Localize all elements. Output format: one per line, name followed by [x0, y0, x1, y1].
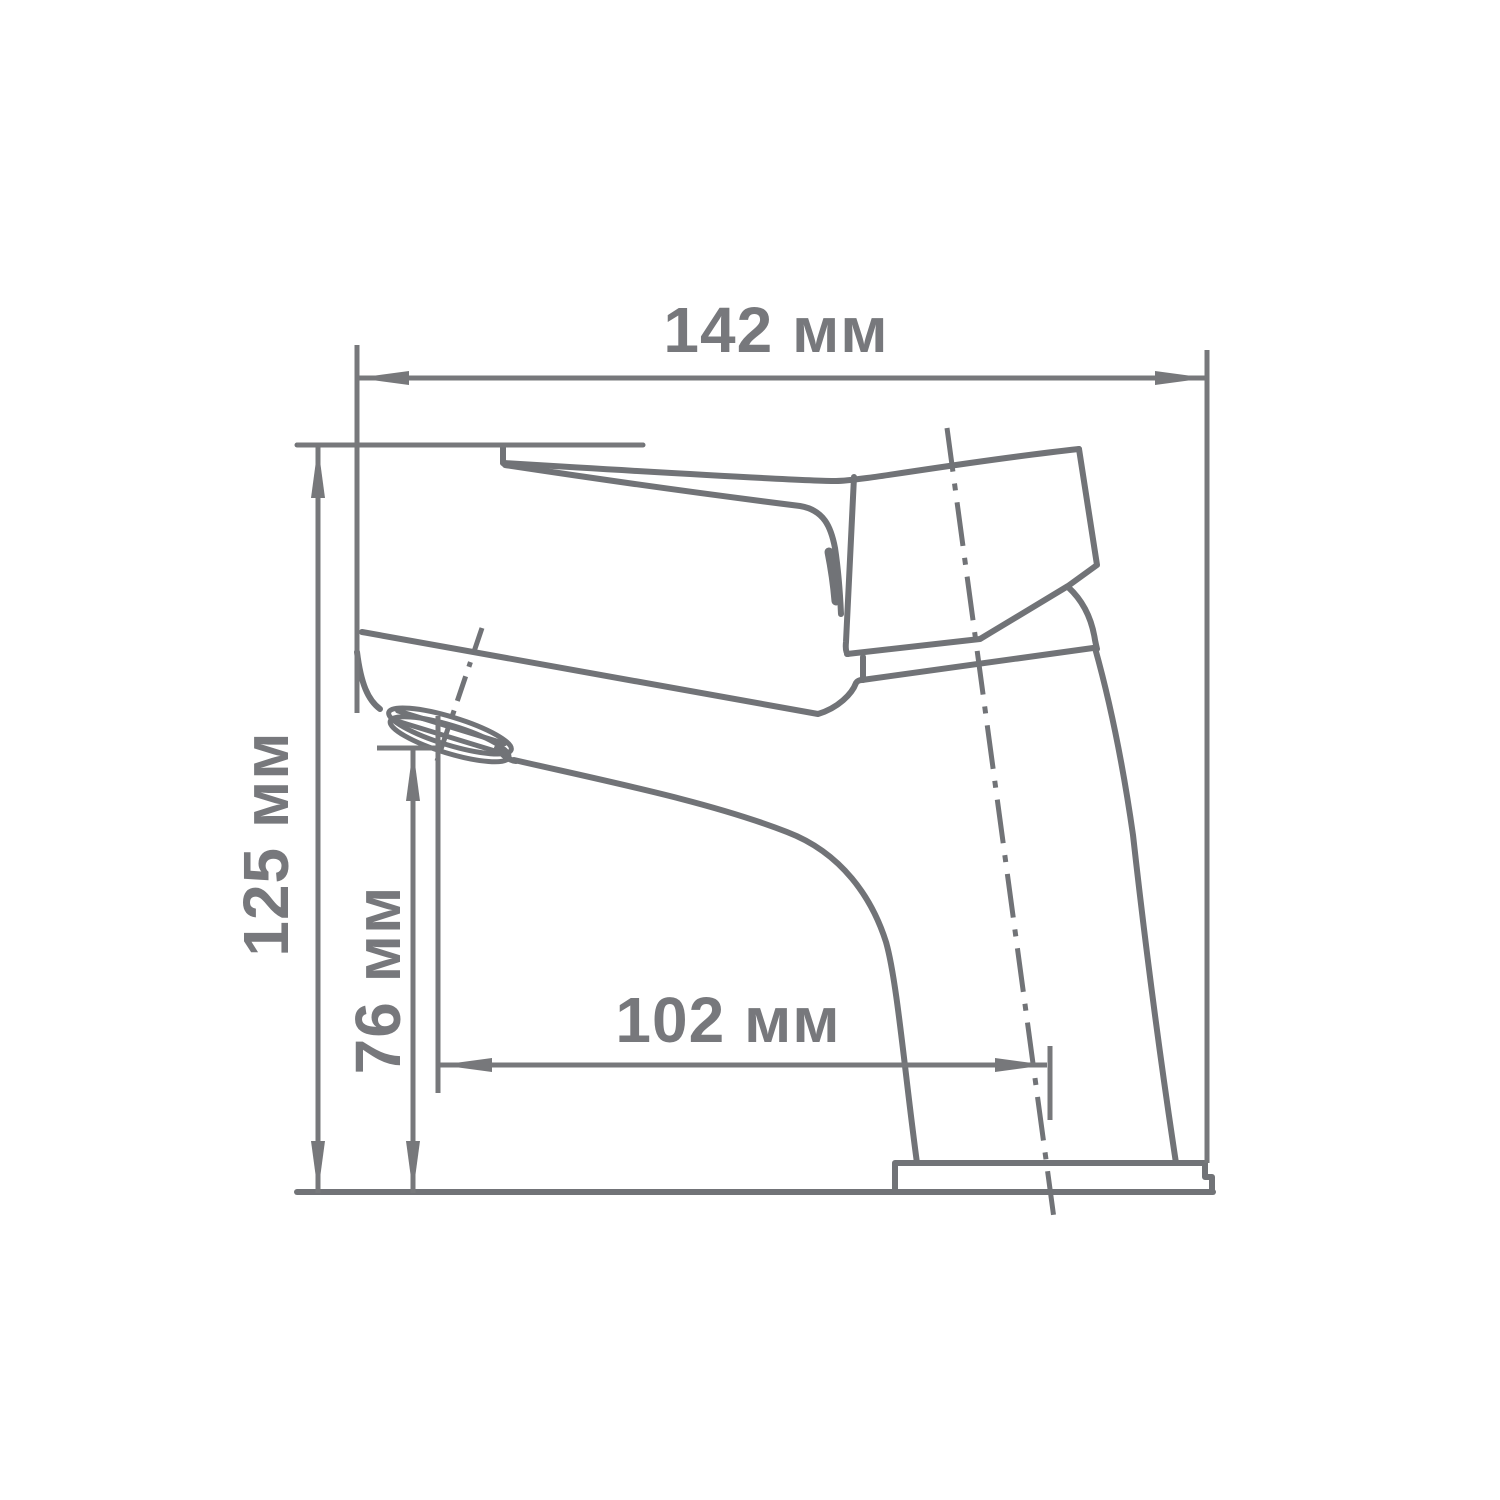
dim-label-overall-height: 125 мм: [230, 731, 302, 956]
arrowhead-right: [995, 1058, 1047, 1072]
body-right-edge: [1095, 648, 1176, 1163]
drawing-sheet: 142 мм 125 мм 76 мм 102 мм: [0, 0, 1500, 1500]
arrowhead-top: [406, 749, 420, 801]
arrowhead-left: [440, 1058, 492, 1072]
spout-front-lower-edge: [505, 465, 841, 614]
dim-label-overall-length: 142 мм: [663, 294, 888, 366]
arrowhead-top: [311, 446, 325, 498]
dimension-spout-height: 76 мм: [342, 748, 440, 1193]
spout-foot-curve: [357, 652, 380, 709]
arrowhead-bottom: [406, 1141, 420, 1193]
handle-right-edge: [847, 449, 1097, 654]
base-plate: [895, 1163, 1212, 1190]
handle-left-edge: [846, 477, 854, 654]
aerator: [382, 699, 515, 771]
body-neck-arc: [1068, 587, 1097, 649]
spout-end-sliver: [829, 552, 836, 601]
arrowhead-left: [357, 371, 409, 385]
faucet-dimension-drawing: 142 мм 125 мм 76 мм 102 мм: [0, 0, 1500, 1500]
body-front-edge: [514, 760, 917, 1163]
arrowhead-right: [1155, 371, 1207, 385]
body-centerline: [947, 428, 1055, 1226]
dimension-spout-reach: 102 мм: [438, 716, 1050, 1120]
dim-label-spout-height: 76 мм: [342, 886, 414, 1075]
dim-label-spout-reach: 102 мм: [615, 984, 840, 1056]
faucet-outline: [297, 428, 1213, 1226]
spout-underside-edge: [362, 632, 862, 714]
arrowhead-bottom: [311, 1141, 325, 1193]
